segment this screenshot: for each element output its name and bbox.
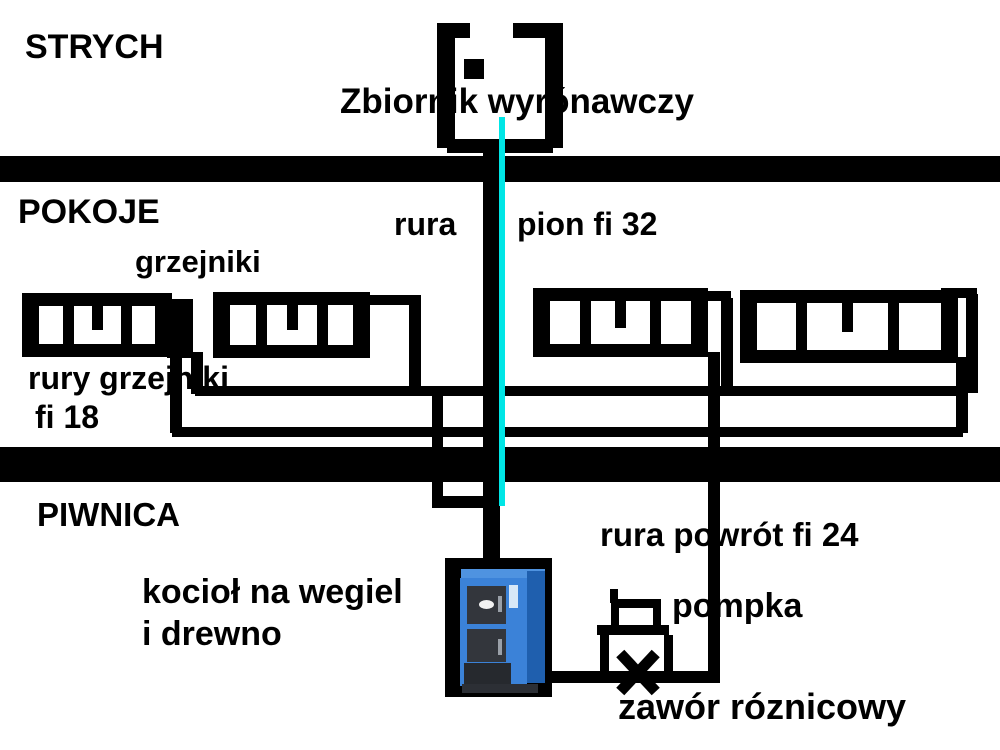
attic-label: STRYCH — [25, 30, 164, 66]
radiator-section-divider — [63, 306, 74, 344]
radiator-2 — [213, 292, 370, 358]
radiator1-connector — [167, 299, 193, 358]
pipe-run-upper — [195, 386, 967, 396]
return-pipe-label: rura powrót fi 24 — [600, 518, 859, 553]
boiler-sticker — [509, 585, 518, 608]
tank-top-right-cap — [513, 23, 555, 38]
boiler-lower-door — [467, 629, 506, 662]
radiator-section-divider — [796, 303, 807, 350]
radiator-section-divider — [888, 303, 899, 350]
radiator-pipes-label-line1: rury grzejniki — [28, 362, 229, 396]
boiler-label-line1: kocioł na wegiel — [142, 575, 403, 611]
radiators-label: grzejniki — [135, 246, 261, 279]
radiator-section-divider — [287, 305, 298, 330]
riser-label-left: rura — [394, 208, 456, 242]
tank-right-wall — [545, 23, 563, 148]
pump-stub — [610, 589, 618, 603]
radiator-section-divider — [842, 303, 853, 332]
tank-left-wall — [437, 23, 455, 148]
heating-diagram: STRYCH POKOJE PIWNICA Zbiornik wyrónawcz… — [0, 0, 1000, 750]
tank-inner-mark — [464, 59, 484, 79]
radiator-section-divider — [580, 301, 591, 344]
boiler-photo — [445, 558, 552, 697]
radiator-section-divider — [256, 305, 267, 345]
pump-base — [597, 625, 669, 635]
radiator2-drop — [409, 300, 421, 390]
pump-bypass-left-leg — [600, 635, 609, 675]
pump-body-right — [653, 608, 661, 626]
expansion-tank-label: Zbiornik wyrónawczy — [340, 84, 694, 121]
radiator-1 — [22, 293, 172, 357]
riser-label-right: pion fi 32 — [517, 208, 657, 242]
boiler-door-handle — [498, 639, 502, 655]
radiator-4 — [740, 290, 958, 363]
pump-bypass-right-leg — [664, 635, 673, 675]
radiator4-drop-lower — [956, 357, 968, 433]
radiator-section-divider — [650, 301, 661, 344]
riser-highlight-line — [499, 117, 505, 506]
pump-body-top — [611, 599, 661, 608]
riser-branch-drop — [432, 386, 443, 508]
boiler-upper-door — [467, 586, 506, 624]
radiator-section-divider — [92, 306, 103, 330]
boiler-base — [462, 684, 538, 693]
pump-body-left — [611, 608, 619, 626]
boiler-door-handle — [498, 596, 502, 612]
boiler-side — [527, 571, 545, 683]
riser-branch-jog — [432, 496, 490, 508]
tank-top-left-cap — [437, 23, 470, 38]
radiator-section-divider — [317, 305, 328, 345]
valve-label: zawór róznicowy — [618, 688, 906, 726]
boiler-label-line2: i drewno — [142, 617, 282, 653]
basement-label: PIWNICA — [37, 498, 180, 533]
radiator-pipes-label-line2: fi 18 — [35, 401, 99, 435]
radiator-section-divider — [121, 306, 132, 344]
radiator3-drop — [721, 298, 733, 390]
pump-label: pompka — [672, 589, 802, 625]
return-pipe-vertical — [708, 352, 720, 672]
radiator-section-divider — [615, 301, 626, 328]
boiler-ash-door — [464, 663, 511, 686]
radiator-3 — [533, 288, 708, 357]
pipe-run-lower — [172, 427, 963, 437]
boiler-logo — [479, 600, 494, 609]
rooms-label: POKOJE — [18, 195, 160, 231]
